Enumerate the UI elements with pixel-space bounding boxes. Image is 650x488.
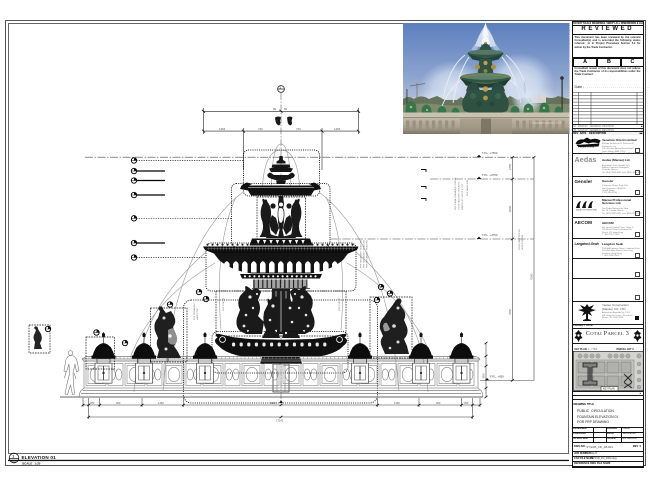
svg-text:FRP ORNAMENT FEATURE: FRP ORNAMENT FEATURE	[360, 239, 363, 268]
svg-text:ELEVATION 01: ELEVATION 01	[22, 455, 57, 460]
svg-text:FRP ORNAMENT FEATURE: FRP ORNAMENT FEATURE	[363, 239, 366, 268]
svg-text:1: 1	[12, 455, 14, 459]
svg-text:LAMP POST: LAMP POST	[196, 307, 199, 320]
svg-text:730: 730	[296, 127, 301, 131]
svg-text:450: 450	[464, 401, 469, 405]
svg-text:900: 900	[116, 401, 121, 405]
svg-text:2000: 2000	[508, 205, 512, 212]
svg-text:1450: 1450	[158, 401, 164, 405]
svg-text:FRP BASIN RIM: FRP BASIN RIM	[466, 180, 469, 196]
svg-text:1450: 1450	[394, 401, 400, 405]
svg-text:F.P.L. +850: F.P.L. +850	[490, 375, 504, 379]
svg-text:FRP FINIAL ORNAMENT REFER: FRP FINIAL ORNAMENT REFER	[454, 177, 457, 210]
svg-text:90: 90	[284, 107, 288, 111]
svg-text:4750: 4750	[508, 308, 512, 315]
svg-text:450: 450	[90, 401, 95, 405]
svg-text:MACAU PROFESSIONAL: MACAU PROFESSIONAL	[576, 208, 597, 210]
svg-text:SCALE 1:25: SCALE 1:25	[22, 461, 41, 465]
svg-text:REFER DETAIL: REFER DETAIL	[521, 234, 524, 250]
svg-text:850: 850	[481, 373, 485, 378]
svg-text:FRP ORNAMENT FEATURE: FRP ORNAMENT FEATURE	[366, 239, 369, 268]
svg-text:FRP STATUE: FRP STATUE	[222, 297, 225, 311]
svg-text:2750: 2750	[508, 163, 512, 170]
svg-text:WATER JET NOZZLE TYP.: WATER JET NOZZLE TYP.	[461, 183, 464, 210]
svg-text:17100: 17100	[276, 419, 284, 423]
svg-text:T.P.L. +4750: T.P.L. +4750	[482, 233, 498, 237]
svg-text:900: 900	[436, 401, 441, 405]
svg-text:FRP ORNAMENT: FRP ORNAMENT	[193, 302, 196, 320]
svg-text:VENETIAN: VENETIAN	[578, 144, 594, 147]
svg-text:FOUNTAIN PROFILE: FOUNTAIN PROFILE	[518, 228, 521, 250]
svg-text:© fountain-photo 2009: © fountain-photo 2009	[530, 121, 562, 125]
svg-text:TO DETAIL DWG 5YSUB FD: TO DETAIL DWG 5YSUB FD	[458, 181, 461, 210]
svg-text:1454: 1454	[219, 127, 226, 131]
svg-text:T.P.L. +7500: T.P.L. +7500	[482, 151, 498, 155]
svg-text:T.P.L. +6750: T.P.L. +6750	[482, 173, 498, 177]
svg-text:1454: 1454	[334, 127, 341, 131]
svg-text:6800: 6800	[270, 401, 276, 405]
svg-text:7500: 7500	[529, 273, 533, 280]
svg-text:90: 90	[273, 107, 277, 111]
svg-text:FRP STATUE: FRP STATUE	[338, 297, 341, 311]
svg-text:730: 730	[258, 127, 263, 131]
